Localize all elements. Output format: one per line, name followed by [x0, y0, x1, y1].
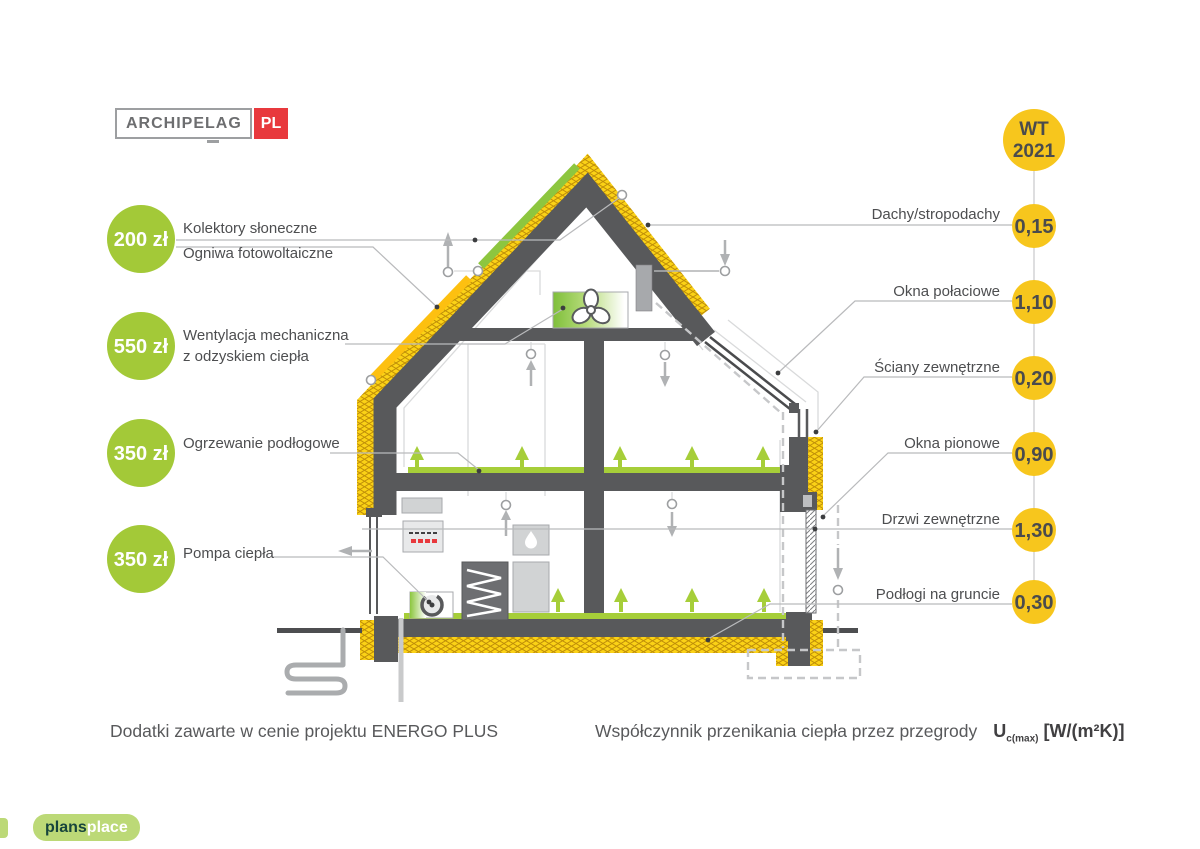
attic-collar-beam	[460, 328, 704, 341]
feature-label: Ogniwa fotowoltaiczne	[183, 245, 333, 262]
partition-label: Ściany zewnętrzne	[874, 358, 1000, 376]
house-structure	[277, 166, 858, 666]
partition-label: Okna pionowe	[904, 435, 1000, 452]
u-subscript: c(max)	[1006, 734, 1038, 745]
central-wall-attic	[584, 341, 604, 473]
right-foundation-insulation-inner	[776, 641, 788, 666]
price-value: 200 zł	[114, 229, 169, 251]
left-foundation	[374, 616, 398, 662]
control-panel	[403, 521, 443, 552]
u-value: 1,10	[1015, 292, 1054, 314]
ground-loop-pipe	[287, 630, 345, 693]
price-badges: 200 zł 550 zł 350 zł 350 zł Kolektory sł…	[107, 205, 349, 593]
duct-construction-lines	[404, 203, 818, 612]
wt-line2: 2021	[1013, 141, 1056, 162]
feature-label: Ogrzewanie podłogowe	[183, 435, 340, 452]
wt-line1: WT	[1019, 119, 1049, 140]
ground-line-right	[823, 628, 858, 633]
left-window-head	[366, 508, 382, 517]
infographic-page: ARCHIPELAG PL	[0, 0, 1200, 849]
ground-slab-insulation	[392, 637, 808, 653]
price-value: 350 zł	[114, 443, 169, 465]
partition-label: Okna połaciowe	[893, 283, 1000, 300]
archipelag-logo-tab	[207, 140, 219, 143]
feature-label: Pompa ciepła	[183, 545, 275, 562]
ground-floor-heating-strip	[404, 613, 786, 619]
ground-slab	[390, 619, 812, 637]
attic-floor-slab	[396, 473, 789, 491]
u-value: 1,30	[1015, 520, 1054, 542]
roof-window-end-cap	[789, 403, 799, 413]
caption-coefficient-text: Współczynnik przenikania ciepła przez pr…	[595, 721, 977, 742]
central-wall-ground	[584, 491, 604, 613]
left-window-glazing	[370, 515, 377, 614]
partition-label: Drzwi zewnętrzne	[882, 511, 1000, 528]
roller-blind-inner	[803, 495, 812, 507]
right-foundation	[786, 612, 812, 666]
u-value: 0,20	[1015, 368, 1054, 390]
feature-label: Wentylacja mechaniczna	[183, 327, 349, 344]
archipelag-logo: ARCHIPELAG PL	[115, 108, 288, 139]
right-foundation-insulation-outer	[810, 620, 823, 666]
u-units: [W/(m²K)]	[1044, 721, 1125, 741]
storage-tank	[513, 562, 549, 612]
roof-window-glazing-inner	[705, 342, 790, 409]
u-formula: Uc(max) [W/(m²K)]	[993, 721, 1124, 745]
plansplace-plans-text: plans	[45, 819, 87, 837]
u-value: 0,90	[1015, 444, 1054, 466]
partition-label: Podłogi na gruncie	[876, 586, 1000, 603]
wt-coefficient-column: WT 2021 0,15 1,10 0,20 0,90 1,30 0,30 Da…	[872, 109, 1065, 624]
knee-window-jamb	[799, 409, 807, 437]
archipelag-pl-badge: PL	[254, 108, 288, 139]
roof-window-glazing-outer	[710, 337, 795, 404]
u-value: 0,30	[1015, 592, 1054, 614]
plansplace-sliver	[0, 818, 8, 838]
caption-addons: Dodatki zawarte w cenie projektu ENERGO …	[110, 721, 498, 742]
u-symbol: U	[993, 721, 1006, 741]
caption-coefficient: Współczynnik przenikania ciepła przez pr…	[595, 721, 1125, 745]
left-foundation-insulation	[360, 620, 374, 660]
vent-chimney	[636, 265, 652, 311]
archipelag-logo-text: ARCHIPELAG	[115, 108, 252, 139]
utility-box	[402, 498, 442, 513]
partition-label: Dachy/stropodachy	[872, 206, 1001, 223]
ground-line-left	[277, 628, 362, 633]
u-value: 0,15	[1015, 216, 1054, 238]
price-value: 350 zł	[114, 549, 169, 571]
plansplace-place-text: place	[87, 819, 128, 837]
feature-label: Kolektory słoneczne	[183, 220, 317, 237]
price-value: 550 zł	[114, 336, 169, 358]
exterior-door	[806, 510, 816, 613]
plansplace-logo: plansplace	[33, 814, 140, 841]
feature-label: z odzyskiem ciepła	[183, 348, 310, 365]
